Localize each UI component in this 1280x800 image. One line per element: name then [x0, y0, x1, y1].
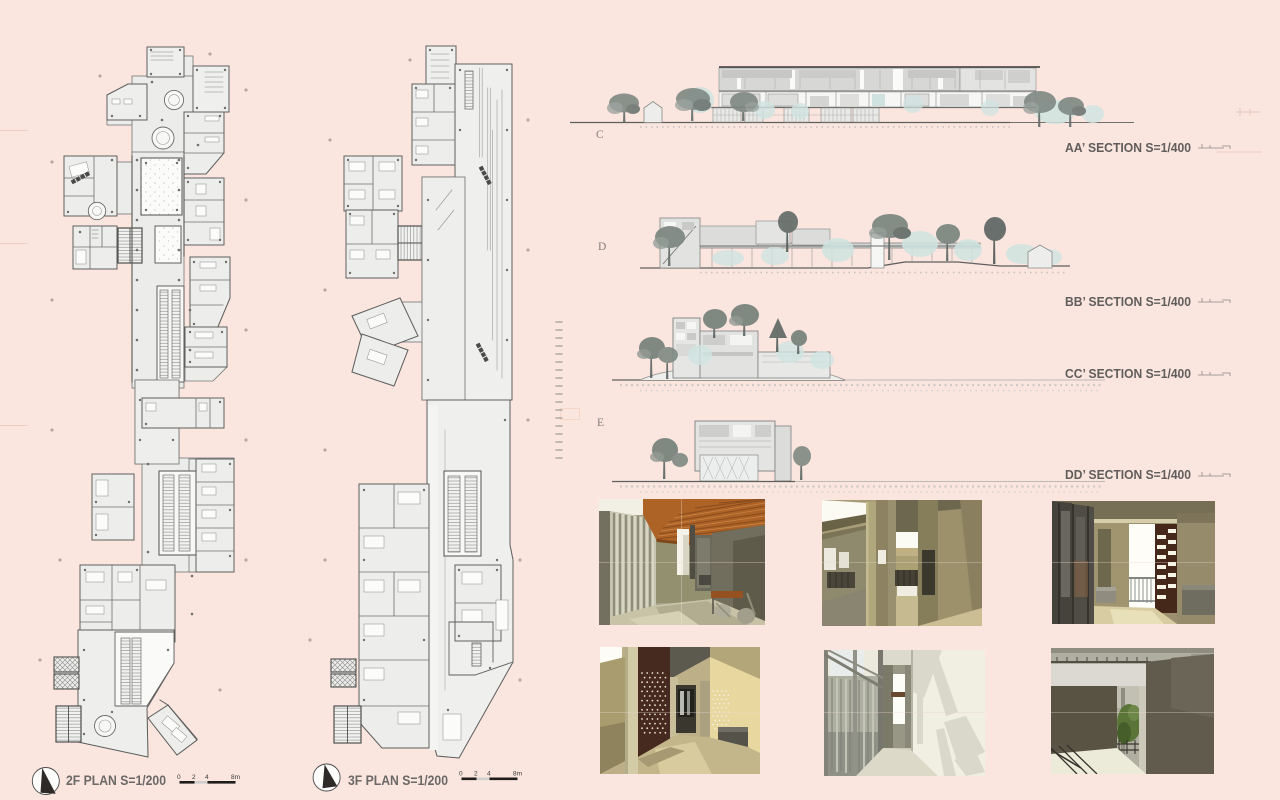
svg-text:2: 2: [474, 771, 478, 778]
svg-text:D: D: [598, 241, 606, 253]
svg-text:C: C: [596, 129, 604, 141]
svg-text:BB’ SECTION S=1/400: BB’ SECTION S=1/400: [1065, 294, 1191, 309]
svg-text:AA’ SECTION S=1/400: AA’ SECTION S=1/400: [1065, 140, 1191, 155]
svg-text:E: E: [597, 417, 604, 429]
svg-text:4: 4: [487, 771, 491, 778]
svg-text:0: 0: [177, 774, 181, 781]
svg-text:2F PLAN S=1/200: 2F PLAN S=1/200: [66, 773, 166, 788]
svg-text:3F PLAN S=1/200: 3F PLAN S=1/200: [348, 773, 448, 788]
svg-text:DD’ SECTION S=1/400: DD’ SECTION S=1/400: [1065, 467, 1191, 482]
svg-text:8m: 8m: [513, 771, 522, 778]
svg-text:CC’ SECTION S=1/400: CC’ SECTION S=1/400: [1065, 366, 1191, 381]
svg-text:0: 0: [459, 771, 463, 778]
svg-text:8m: 8m: [231, 774, 240, 781]
svg-text:2: 2: [192, 774, 196, 781]
svg-text:4: 4: [205, 774, 209, 781]
